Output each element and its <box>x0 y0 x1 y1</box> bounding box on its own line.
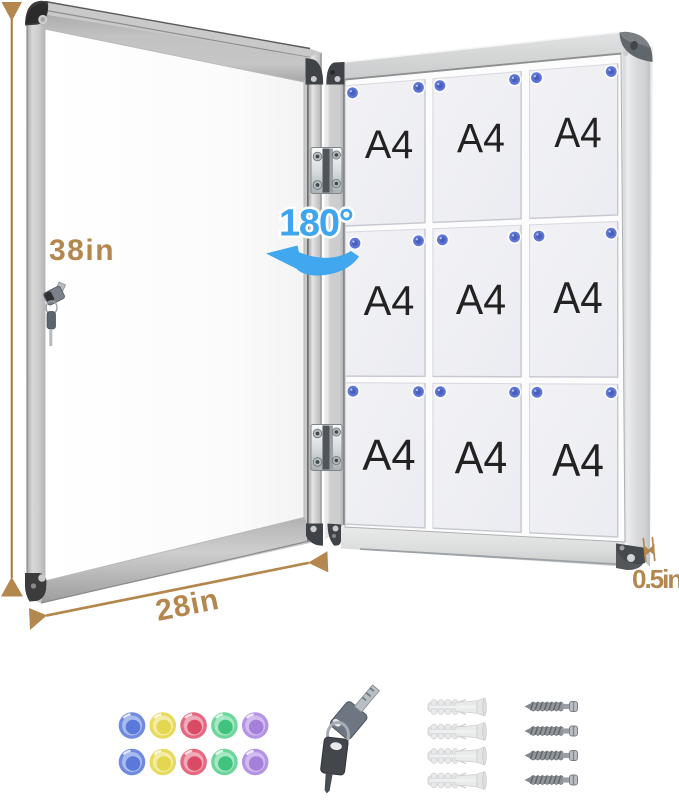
svg-text:A4: A4 <box>553 273 603 323</box>
svg-text:A4: A4 <box>362 432 415 480</box>
svg-text:38in: 38in <box>49 234 115 267</box>
svg-text:180°: 180° <box>279 203 353 245</box>
svg-text:A4: A4 <box>365 123 413 167</box>
svg-text:A4: A4 <box>552 435 604 486</box>
svg-text:A4: A4 <box>554 108 601 156</box>
svg-text:A4: A4 <box>456 275 506 323</box>
svg-text:0.5in: 0.5in <box>632 564 679 594</box>
svg-text:A4: A4 <box>457 116 505 161</box>
svg-text:A4: A4 <box>364 277 415 324</box>
svg-text:A4: A4 <box>455 433 508 483</box>
